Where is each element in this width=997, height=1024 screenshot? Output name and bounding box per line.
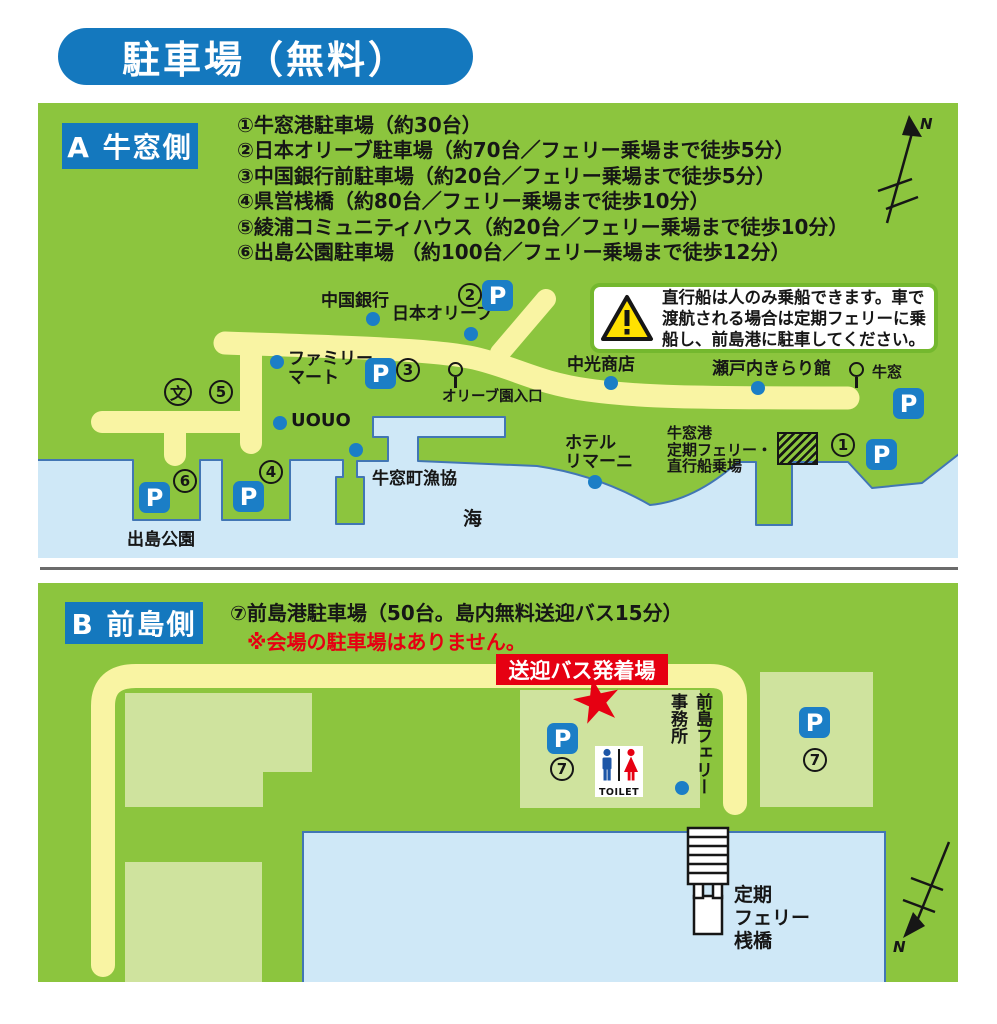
label-chugoku-bank: 中国銀行 bbox=[321, 292, 389, 311]
location-dot-kirarikan bbox=[751, 381, 765, 395]
location-dot-nihon-olive bbox=[464, 327, 478, 341]
label-olive-entrance: オリーブ園入口 bbox=[442, 389, 543, 405]
warning-box: 直行船は人のみ乗船できます。車で 渡航される場合は定期フェリーに乗 船し、前島港… bbox=[590, 283, 938, 353]
parking-map-page: 駐車場（無料） N A 牛窓側 bbox=[0, 0, 997, 1024]
label-kirarikan: 瀬戸内きらり館 bbox=[712, 360, 831, 379]
bus-stop-icon-ushimado bbox=[849, 362, 864, 388]
map-a-ushimado: N A 牛窓側 ①牛窓港駐車場（約30台） ②日本オリーブ駐車場（約70台／フェ… bbox=[38, 103, 958, 558]
marker-6: 6 bbox=[173, 469, 197, 493]
location-dot-hotel-limani bbox=[588, 475, 602, 489]
marker-1: 1 bbox=[831, 433, 855, 457]
svg-text:N: N bbox=[920, 115, 933, 133]
location-dot-ferry-office bbox=[675, 781, 689, 795]
marker-2: 2 bbox=[458, 283, 482, 307]
compass-icon: N bbox=[893, 842, 949, 956]
label-ferry-pier: 定期 フェリー 桟橋 bbox=[734, 884, 810, 953]
label-familymart: ファミリー マート bbox=[288, 350, 373, 388]
no-parking-note: ※会場の駐車場はありません。 bbox=[247, 626, 526, 655]
section-a-label: A 牛窓側 bbox=[62, 123, 198, 169]
label-sea: 海 bbox=[463, 509, 482, 530]
ferry-landing-hatch-icon bbox=[777, 432, 818, 465]
toilet-icon bbox=[595, 746, 643, 784]
parking-icon-road-end: P bbox=[893, 388, 924, 419]
list-item: ⑤綾浦コミュニティハウス（約20台／フェリー乗場まで徒歩10分） bbox=[237, 215, 848, 240]
marker-7-mid: 7 bbox=[550, 757, 574, 781]
marker-4: 4 bbox=[259, 460, 283, 484]
svg-text:N: N bbox=[893, 938, 906, 956]
label-gyokyo: 牛窓町漁協 bbox=[372, 470, 457, 489]
section-b-label: B 前島側 bbox=[65, 602, 203, 644]
marker-3: 3 bbox=[396, 358, 420, 382]
location-dot-uouo bbox=[273, 416, 287, 430]
label-ferry-noriba: 牛窓港 定期フェリー・ 直行船乗場 bbox=[667, 425, 772, 475]
label-ushimado-busstop: 牛窓 bbox=[872, 364, 902, 381]
map-b-maejima: N B 前島側 ⑦前島港駐車場（50台。島内無料送迎バス15分） ※会場の駐車場… bbox=[38, 583, 958, 982]
parking-icon-6: P bbox=[139, 482, 170, 513]
parking-icon-4: P bbox=[233, 481, 264, 512]
list-item: ⑥出島公園駐車場 （約100台／フェリー乗場まで徒歩12分） bbox=[237, 240, 848, 265]
location-dot-familymart bbox=[270, 355, 284, 369]
marker-7-right: 7 bbox=[803, 748, 827, 772]
label-maejima-ferry-office: 前島フェリー 事務所 bbox=[664, 693, 714, 829]
warning-text: 直行船は人のみ乗船できます。車で 渡航される場合は定期フェリーに乗 船し、前島港… bbox=[662, 287, 926, 350]
label-uouo: UOUO bbox=[291, 411, 351, 431]
warning-icon bbox=[600, 293, 654, 343]
page-title: 駐車場（無料） bbox=[58, 28, 473, 85]
location-dot-chugoku-bank bbox=[366, 312, 380, 326]
location-dot-chuko-shoten bbox=[604, 376, 618, 390]
parking-icon-3: P bbox=[365, 358, 396, 389]
parking-list-b: ⑦前島港駐車場（50台。島内無料送迎バス15分） bbox=[230, 597, 683, 626]
section-divider bbox=[40, 567, 958, 570]
parking-icon-7-right: P bbox=[799, 707, 830, 738]
label-hotel-limani: ホテル リマーニ bbox=[565, 434, 633, 472]
label-chuko-shoten: 中光商店 bbox=[567, 356, 635, 375]
toilet-sign: TOILET bbox=[595, 746, 643, 797]
list-item: ③中国銀行前駐車場（約20台／フェリー乗場まで徒歩5分） bbox=[237, 164, 848, 189]
location-dot-gyokyo bbox=[349, 443, 363, 457]
list-item: ①牛窓港駐車場（約30台） bbox=[237, 113, 848, 138]
parking-list-a: ①牛窓港駐車場（約30台） ②日本オリーブ駐車場（約70台／フェリー乗場まで徒歩… bbox=[237, 113, 848, 265]
toilet-label: TOILET bbox=[595, 788, 643, 798]
label-nihon-olive: 日本オリーブ bbox=[392, 305, 493, 324]
label-dejima-park: 出島公園 bbox=[127, 531, 195, 550]
pier-icon bbox=[688, 828, 728, 934]
parking-icon-2: P bbox=[482, 280, 513, 311]
parking-icon-1: P bbox=[866, 439, 897, 470]
parking-icon-7-mid: P bbox=[547, 723, 578, 754]
list-item: ④県営桟橋（約80台／フェリー乗場まで徒歩10分） bbox=[237, 189, 848, 214]
list-item: ②日本オリーブ駐車場（約70台／フェリー乗場まで徒歩5分） bbox=[237, 138, 848, 163]
bus-stop-icon-olive bbox=[448, 362, 463, 388]
marker-5: 5 bbox=[209, 380, 233, 404]
school-icon: 文 bbox=[164, 378, 192, 406]
compass-icon: N bbox=[878, 115, 933, 223]
